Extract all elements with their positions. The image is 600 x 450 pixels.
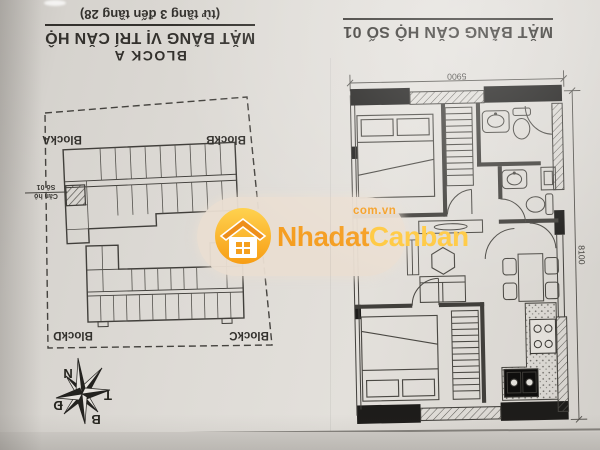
highlighted-unit-label: Căn hộ Số 01 — [34, 183, 58, 199]
compass-label-bottom: B — [91, 412, 100, 427]
toilet-icon-bathroom2 — [526, 194, 553, 215]
site-plan-title: MẶT BẰNG VỊ TRÍ CĂN HỘ — [45, 24, 255, 46]
paper-glare — [44, 0, 66, 6]
dimension-top-value: 5900 — [447, 71, 467, 81]
compass-label-right: T — [104, 388, 112, 403]
toilet-icon-bathroom1 — [513, 108, 531, 139]
compass-label-top: N — [63, 366, 72, 381]
sink-icon-bathroom1 — [482, 110, 509, 132]
sofa-icon — [420, 276, 466, 303]
table-surface — [0, 432, 600, 450]
brand-part1: Nhadat — [277, 221, 369, 252]
highlighted-unit-01 — [66, 185, 86, 206]
svg-text:Căn hộ: Căn hộ — [34, 192, 58, 199]
label-block-c: BlockC — [229, 329, 269, 341]
dining-set-icon — [503, 253, 559, 301]
door-arcs — [408, 105, 557, 305]
brand-logo-house-icon — [213, 206, 273, 266]
wardrobe-icon-bedroom2 — [451, 310, 480, 399]
brand-wordmark: NhadatCanban — [277, 221, 469, 253]
block-heading: BLOCK A — [30, 48, 270, 64]
bed-icon-bedroom2 — [361, 315, 439, 401]
watermark-pill: NhadatCanban com.vn — [197, 197, 406, 276]
brand-part2: Canban — [369, 221, 469, 252]
kitchen-sink-icon — [504, 369, 538, 397]
dimension-right-value: 8100 — [576, 245, 586, 265]
wardrobe-icon-bedroom1 — [445, 107, 473, 186]
bed-icon-bedroom1 — [357, 114, 435, 198]
sink-icon-bathroom2 — [502, 170, 527, 189]
site-plan-floors-note: (từ tầng 3 đến tầng 28) — [30, 7, 270, 22]
label-block-d: BlockD — [53, 329, 93, 341]
label-block-a: BlockA — [42, 133, 82, 145]
paper-crease — [330, 58, 331, 432]
apartment-plan-header: MẶT BẰNG CĂN HỘ SỐ 01 — [322, 16, 574, 40]
label-block-b: BlockB — [206, 133, 246, 145]
stove-icon — [530, 319, 556, 353]
compass-rose: N T Đ B — [50, 352, 142, 436]
compass-label-left: Đ — [53, 398, 62, 413]
site-plan-header: BLOCK A MẶT BẰNG VỊ TRÍ CĂN HỘ (từ tầng … — [30, 7, 270, 64]
photographed-floorplan-sheet: BLOCK A MẶT BẰNG VỊ TRÍ CĂN HỘ (từ tầng … — [0, 0, 600, 450]
brand-domain: com.vn — [353, 205, 396, 217]
apartment-plan-title: MẶT BẰNG CĂN HỘ SỐ 01 — [343, 18, 553, 40]
svg-text:Số 01: Số 01 — [37, 183, 56, 191]
